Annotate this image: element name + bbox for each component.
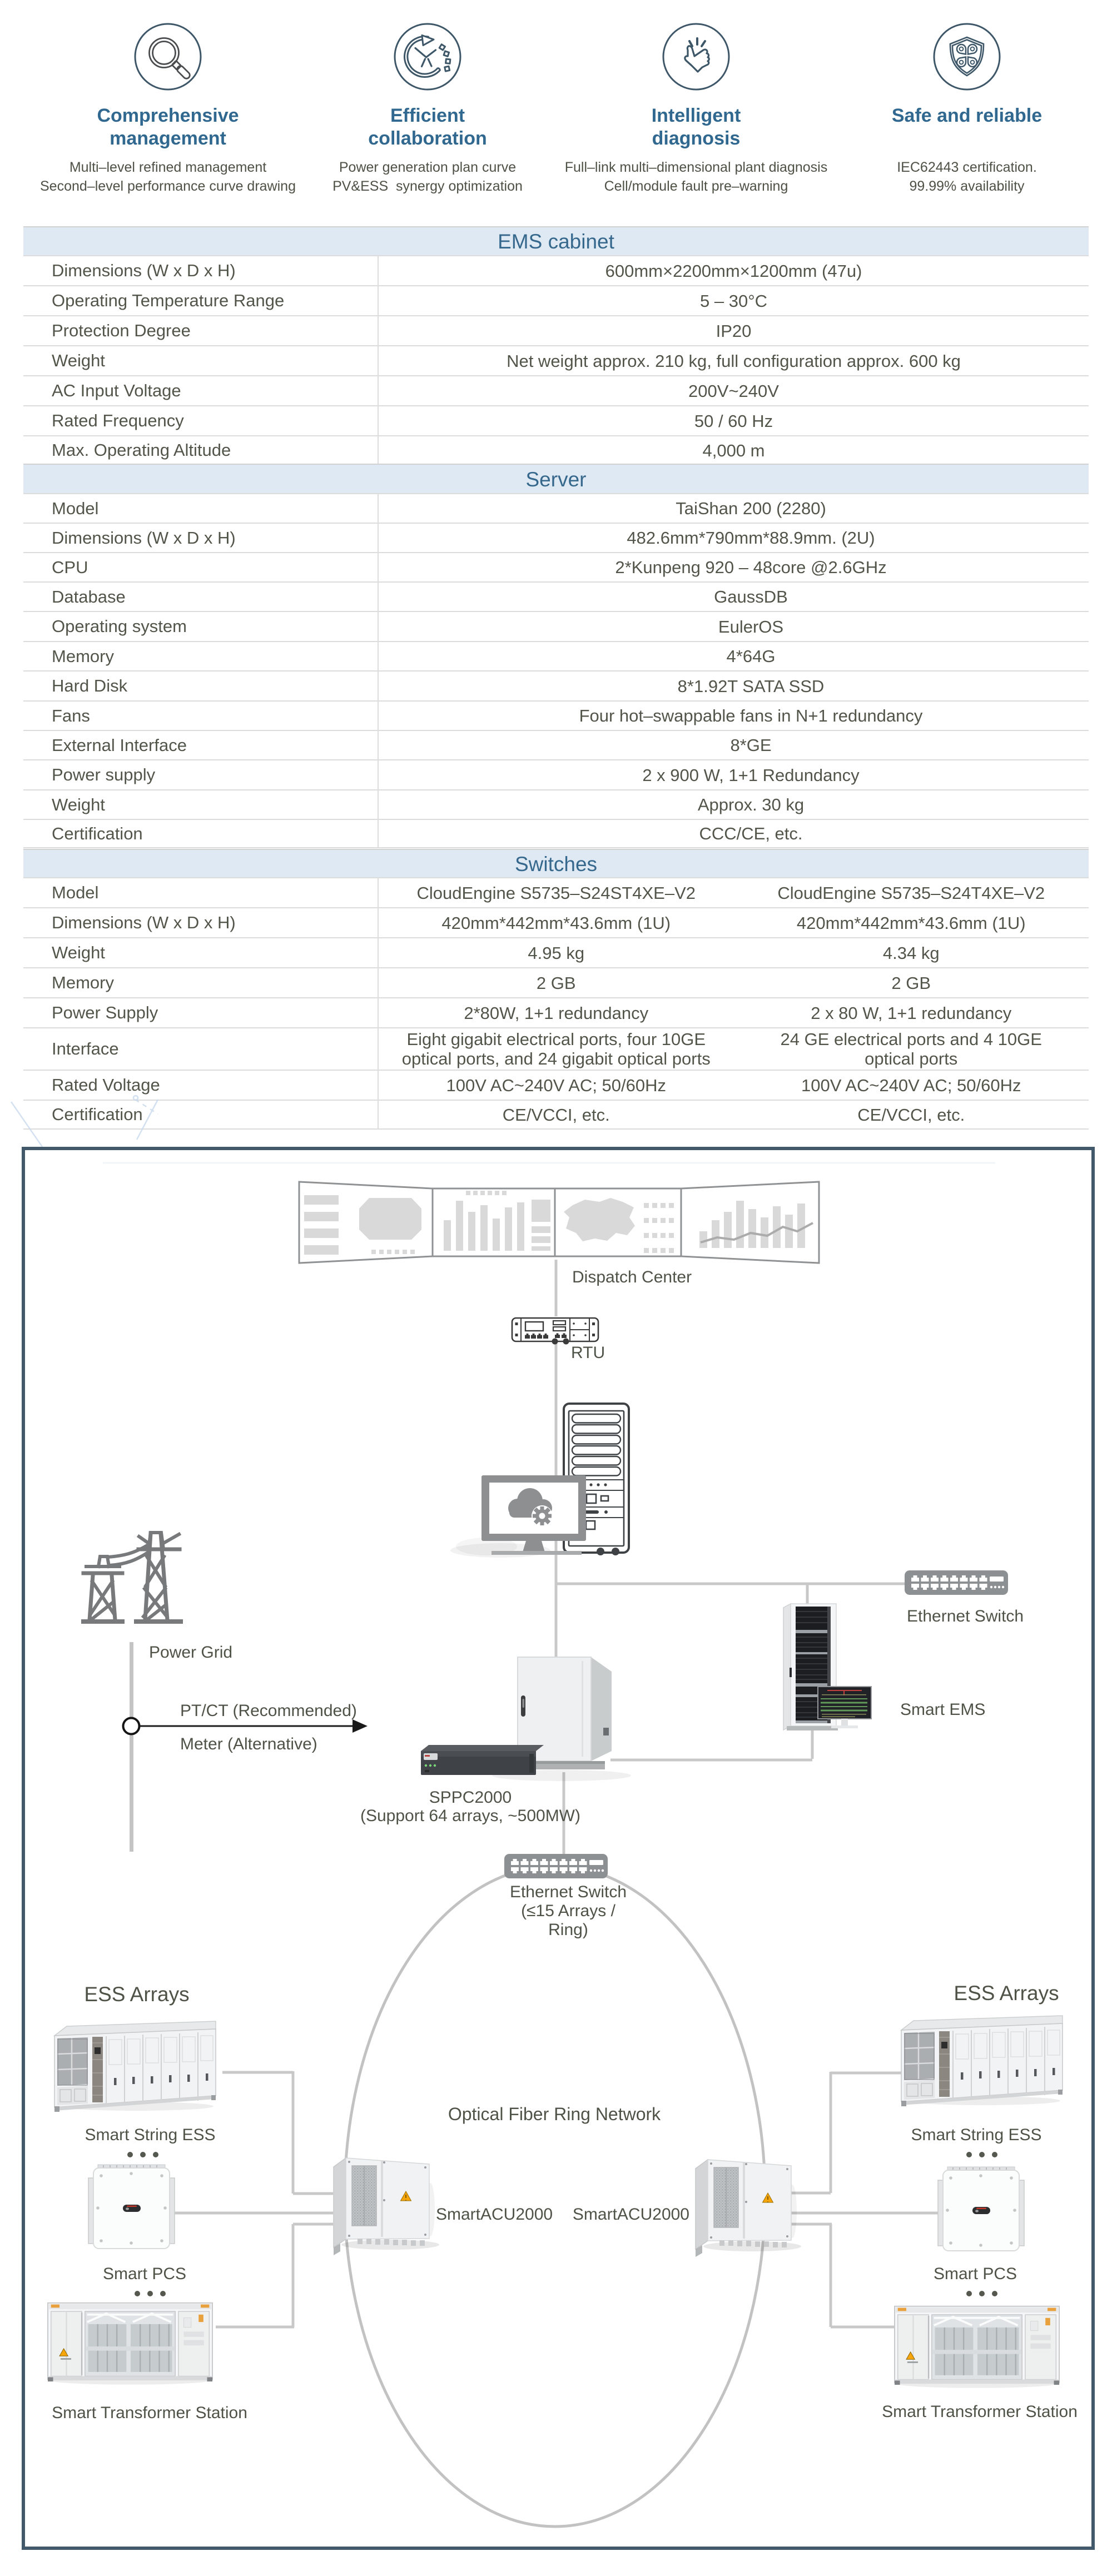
svg-text:Ethernet Switch: Ethernet Switch bbox=[907, 1607, 1024, 1625]
svg-text:Smart PCS: Smart PCS bbox=[934, 2265, 1017, 2283]
svg-text:Ring): Ring) bbox=[548, 1921, 588, 1939]
svg-text:Meter (Alternative): Meter (Alternative) bbox=[180, 1735, 317, 1753]
svg-text:SmartACU2000: SmartACU2000 bbox=[573, 2205, 689, 2224]
svg-text:Smart EMS: Smart EMS bbox=[900, 1700, 985, 1719]
svg-text:SmartACU2000: SmartACU2000 bbox=[436, 2205, 553, 2224]
svg-text:Ethernet Switch: Ethernet Switch bbox=[510, 1883, 627, 1901]
svg-text:Smart Transformer Station: Smart Transformer Station bbox=[52, 2404, 247, 2422]
svg-text:(≤15 Arrays /: (≤15 Arrays / bbox=[521, 1902, 616, 1920]
svg-text:SPPC2000: SPPC2000 bbox=[429, 1788, 512, 1807]
svg-text:Smart String ESS: Smart String ESS bbox=[911, 2126, 1041, 2144]
svg-text:Smart Transformer Station: Smart Transformer Station bbox=[882, 2403, 1078, 2421]
svg-text:Dispatch Center: Dispatch Center bbox=[572, 1268, 692, 1286]
svg-text:Smart PCS: Smart PCS bbox=[103, 2265, 186, 2283]
svg-text:ESS Arrays: ESS Arrays bbox=[84, 1983, 189, 2006]
svg-text:Smart String ESS: Smart String ESS bbox=[85, 2126, 215, 2144]
svg-text:ESS Arrays: ESS Arrays bbox=[954, 1982, 1059, 2005]
svg-text:Power Grid: Power Grid bbox=[149, 1643, 232, 1662]
svg-text:Optical Fiber Ring Network: Optical Fiber Ring Network bbox=[448, 2104, 661, 2124]
svg-text:RTU: RTU bbox=[571, 1344, 605, 1362]
svg-text:(Support 64 arrays, ~500MW): (Support 64 arrays, ~500MW) bbox=[360, 1807, 580, 1825]
svg-text:PT/CT (Recommended): PT/CT (Recommended) bbox=[180, 1702, 357, 1720]
